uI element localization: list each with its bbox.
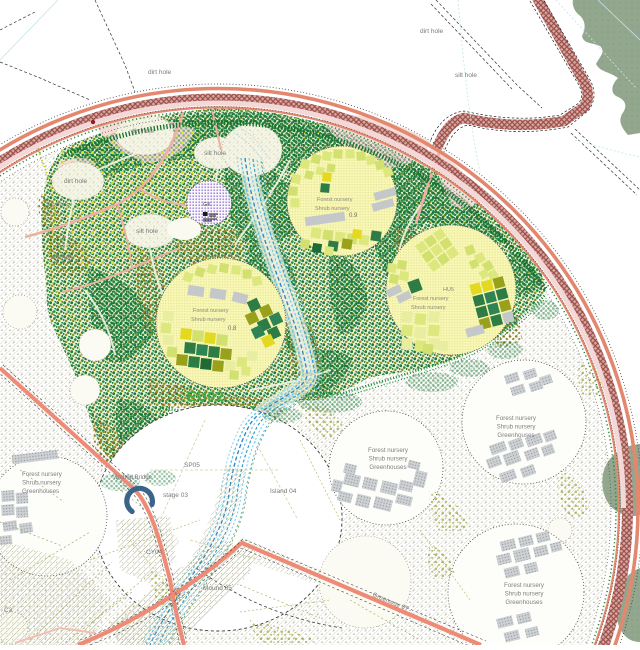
svg-text:Greenhouses: Greenhouses (22, 488, 59, 495)
svg-text:CY04: CY04 (146, 549, 163, 556)
svg-text:Forest nursery: Forest nursery (22, 471, 63, 478)
svg-text:dirt hole: dirt hole (148, 69, 172, 76)
svg-text:Shrub nursery: Shrub nursery (191, 317, 226, 323)
svg-text:Forest nursery: Forest nursery (504, 582, 545, 589)
svg-text:Forest nursery: Forest nursery (496, 415, 537, 422)
svg-text:stage 03: stage 03 (163, 492, 188, 499)
svg-text:Forest nursery: Forest nursery (193, 308, 229, 314)
svg-text:silt hole: silt hole (204, 150, 226, 157)
svg-text:Forest nursery: Forest nursery (413, 296, 449, 302)
svg-text:EU02: EU02 (187, 388, 224, 404)
svg-text:dirt hole: dirt hole (64, 178, 88, 185)
svg-text:Forest nursery: Forest nursery (317, 197, 353, 203)
svg-text:SP05: SP05 (184, 462, 200, 469)
svg-text:GK: GK (203, 202, 211, 208)
svg-text:Shrub nursery: Shrub nursery (22, 479, 62, 486)
svg-text:dirt hole: dirt hole (420, 28, 444, 35)
svg-text:Shrub nursery: Shrub nursery (497, 423, 537, 430)
svg-text:Island 04: Island 04 (270, 488, 297, 495)
svg-text:Shrub nursery: Shrub nursery (411, 305, 446, 311)
svg-text:silt hole: silt hole (136, 228, 158, 235)
svg-text:Mound 05: Mound 05 (203, 585, 232, 592)
svg-text:Shrub nursery: Shrub nursery (315, 206, 350, 212)
svg-text:0.8: 0.8 (228, 326, 237, 332)
svg-text:Forest nursery: Forest nursery (368, 447, 409, 454)
svg-text:Arched Bridge: Arched Bridge (114, 475, 153, 481)
svg-text:Greenhouses: Greenhouses (505, 599, 542, 606)
svg-text:C3: C3 (4, 607, 13, 614)
svg-text:Greenhouses: Greenhouses (497, 432, 534, 439)
svg-text:Greenhouses: Greenhouses (369, 464, 406, 471)
svg-text:dirt hole: dirt hole (131, 128, 155, 135)
svg-text:silt hole: silt hole (52, 254, 74, 261)
svg-text:Shrub nursery: Shrub nursery (369, 455, 409, 462)
svg-text:silt hole: silt hole (455, 72, 477, 79)
svg-text:HU5: HU5 (443, 287, 454, 293)
svg-text:silt hole: silt hole (46, 201, 68, 208)
svg-text:0.9: 0.9 (349, 213, 358, 219)
svg-text:Shrub nursery: Shrub nursery (505, 590, 545, 597)
